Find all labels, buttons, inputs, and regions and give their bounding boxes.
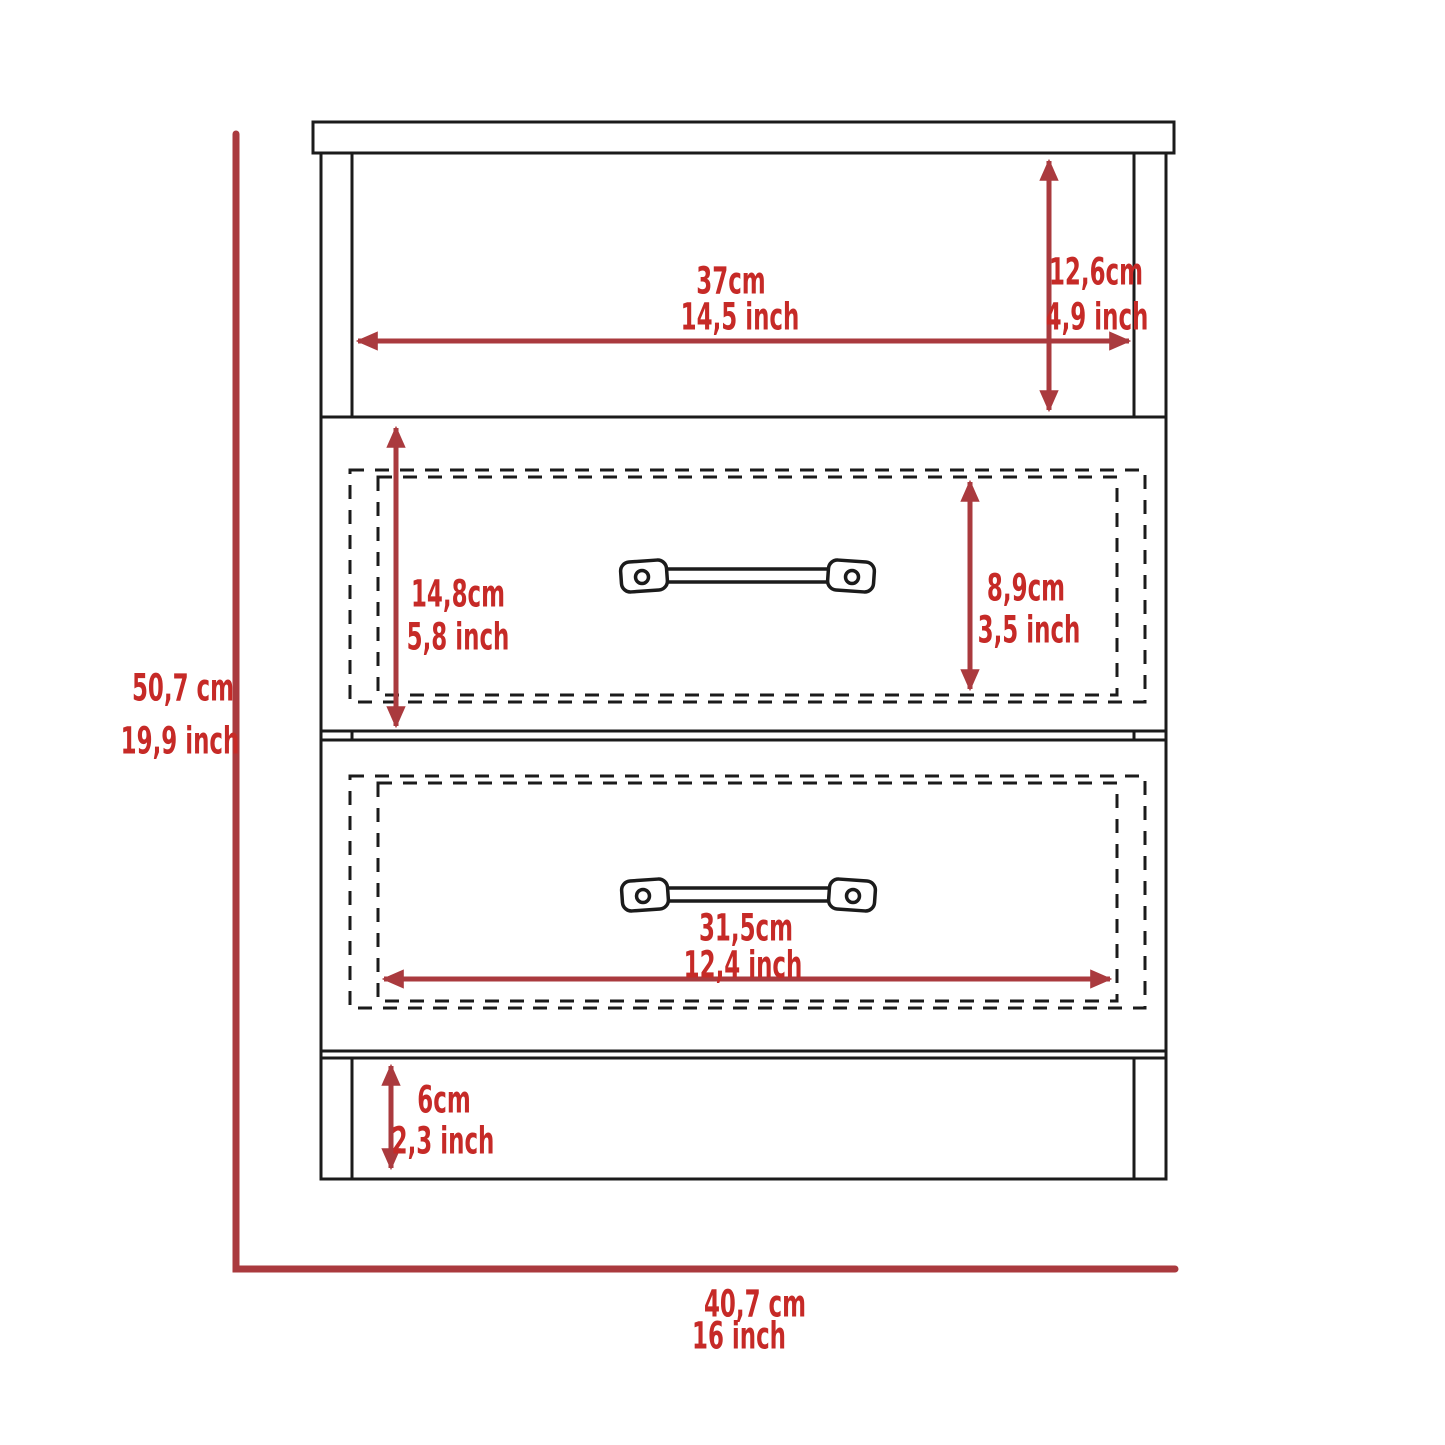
base-height-cm-label: 6cm xyxy=(417,1082,470,1119)
handle-bar xyxy=(655,569,840,582)
opening-height-inch-label: 4,9 inch xyxy=(1046,299,1149,336)
overall-height-cm-label: 50,7 cm xyxy=(132,670,234,707)
opening-height-cm-label: 12,6cm xyxy=(1049,254,1143,291)
opening-width-cm-label: 37cm xyxy=(696,263,765,300)
top-panel xyxy=(313,122,1174,153)
drawer-front-height-cm-label: 14,8cm xyxy=(411,576,505,613)
overall-width-inch-label: 16 inch xyxy=(692,1318,786,1355)
drawer-inner-height-cm-label: 8,9cm xyxy=(987,570,1065,607)
handle-right-screw xyxy=(847,890,860,903)
handle-left-screw xyxy=(637,890,650,903)
dimension-diagram: 37cm 14,5 inch 12,6cm 4,9 inch 14,8cm 5,… xyxy=(0,0,1445,1445)
drawer-inner-width-inch-label: 12,4 inch xyxy=(684,947,803,984)
handle-left-screw xyxy=(636,571,649,584)
handle-bar xyxy=(656,888,841,901)
handle-right-screw xyxy=(846,571,859,584)
drawer-inner-width-cm-label: 31,5cm xyxy=(699,910,793,947)
base-height-inch-label: 2,3 inch xyxy=(392,1123,495,1160)
drawer-inner-height-inch-label: 3,5 inch xyxy=(978,612,1081,649)
opening-width-inch-label: 14,5 inch xyxy=(681,299,800,336)
drawer-front-height-inch-label: 5,8 inch xyxy=(407,619,510,656)
overall-height-inch-label: 19,9 inch xyxy=(121,723,240,760)
